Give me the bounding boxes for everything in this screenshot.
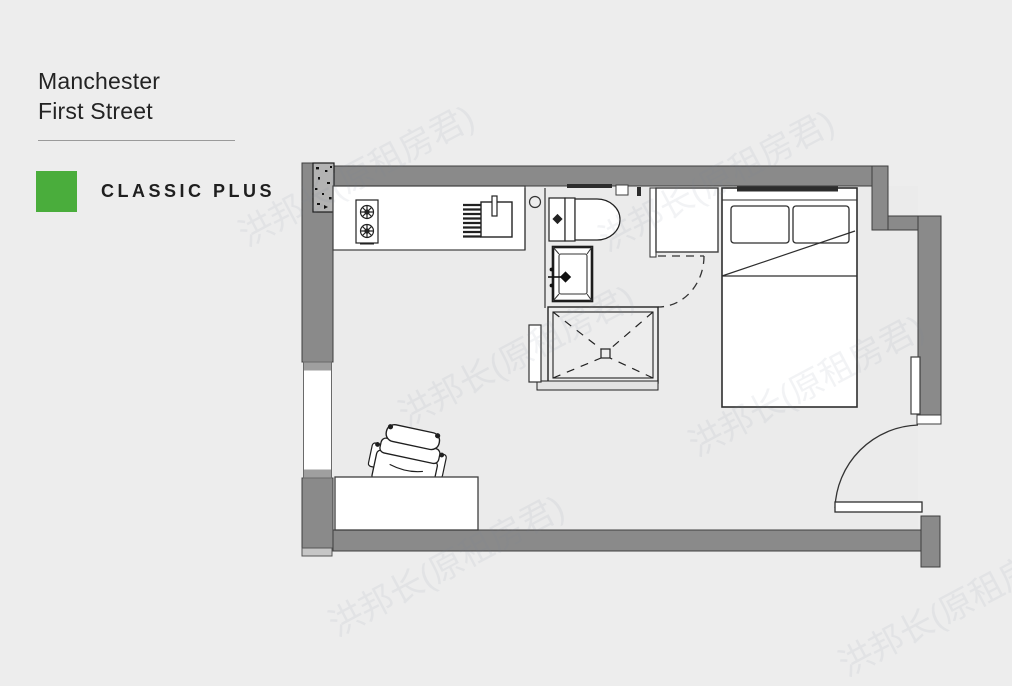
wall-notch — [616, 185, 628, 195]
hob — [356, 200, 378, 244]
double-bed — [722, 187, 857, 408]
brand-logo-icon — [36, 171, 77, 212]
window-right — [911, 357, 920, 414]
window-left — [304, 362, 332, 478]
wall-step-horizontal — [888, 216, 920, 230]
wash-basin — [548, 247, 592, 301]
wall-right — [918, 216, 941, 424]
bathroom-partition-wall — [650, 188, 656, 257]
shower-screen — [529, 325, 541, 382]
wall-top — [333, 166, 880, 186]
door-leaf — [835, 502, 922, 512]
brand-label: CLASSIC PLUS — [101, 181, 275, 202]
structural-column — [313, 163, 334, 212]
bathroom-bulkhead — [567, 184, 612, 188]
wardrobe — [656, 188, 718, 252]
wall-left-lower — [302, 478, 333, 551]
title-line-2: First Street — [38, 96, 235, 126]
title-line-1: Manchester — [38, 66, 235, 96]
title-divider — [38, 140, 235, 141]
shower-kerb — [537, 381, 658, 390]
wall-right-end-cap — [917, 415, 941, 424]
door-jamb-block — [921, 516, 940, 567]
wall-bottom — [333, 530, 922, 551]
toilet — [549, 198, 620, 241]
page-title: Manchester First Street — [38, 66, 235, 126]
brand-row: CLASSIC PLUS — [36, 171, 275, 212]
sink-tap — [492, 196, 497, 216]
header: Manchester First Street — [38, 66, 235, 141]
wall-left-end-cap — [302, 548, 332, 556]
shower — [537, 307, 658, 390]
desk — [335, 477, 478, 530]
wall-step-vertical — [872, 166, 888, 230]
pillow-left — [731, 206, 789, 243]
floorplan-page: Manchester First Street CLASSIC PLUS — [0, 0, 1012, 636]
wall-tick — [637, 187, 641, 196]
pillow-right — [793, 206, 849, 243]
headboard — [737, 187, 838, 192]
